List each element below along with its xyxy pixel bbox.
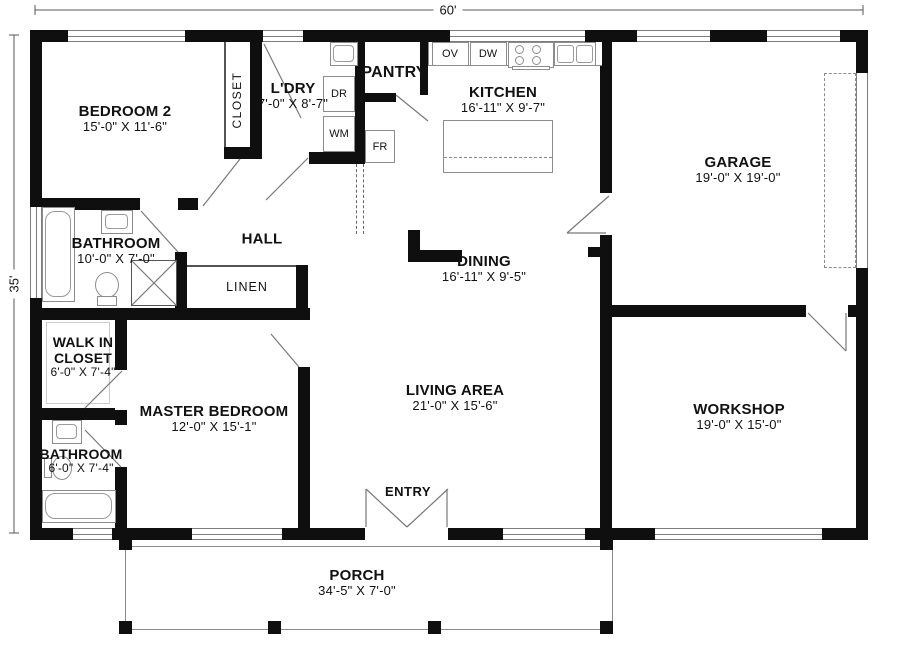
floor-plan: 60' 35' [0,0,900,664]
room-label-linen: LINEN [226,278,268,296]
oven-label: OV [442,48,458,60]
room-label-laundry: L'DRY 7'-0" X 8'-7" [258,80,328,112]
washer-label: WM [329,128,349,140]
fridge-label: FR [373,141,388,153]
room-label-porch: PORCH 34'-5" X 7'-0" [318,567,396,599]
room-label-master: MASTER BEDROOM 12'-0" X 15'-1" [140,403,289,435]
room-label-walkin: WALK IN CLOSET 6'-0" X 7'-4" [42,334,124,380]
room-label-kitchen: KITCHEN 16'-11" X 9'-7" [461,84,545,116]
door-workshop [808,313,846,351]
room-label-dining: DINING 16'-11" X 9'-5" [442,253,526,285]
width-dimension-label: 60' [434,3,463,18]
entry-label: ENTRY [385,483,431,501]
door-garage-dining [567,196,609,233]
room-label-bedroom2: BEDROOM 2 15'-0" X 11'-6" [79,103,172,135]
dishwasher-label: DW [479,48,497,60]
room-label-pantry: PANTRY [361,64,426,82]
room-label-workshop: WORKSHOP 19'-0" X 15'-0" [693,401,785,433]
door-master-bedroom [271,334,299,367]
room-label-bathroom1: BATHROOM 10'-0" X 7'-0" [72,235,161,267]
room-label-hall: HALL [242,230,283,247]
door-laundry-lower [266,158,308,200]
room-label-bathroom2: BATHROOM 6'-0" X 7'-4" [40,446,123,476]
dryer-label: DR [331,88,347,100]
room-label-garage: GARAGE 19'-0" X 19'-0" [695,154,780,186]
door-pantry [396,95,428,121]
room-label-closet: CLOSET [231,71,245,128]
room-label-living: LIVING AREA 21'-0" X 15'-6" [406,382,504,414]
door-bedroom2 [203,159,240,206]
height-dimension-label: 35' [7,270,22,299]
door-layer [0,0,900,664]
